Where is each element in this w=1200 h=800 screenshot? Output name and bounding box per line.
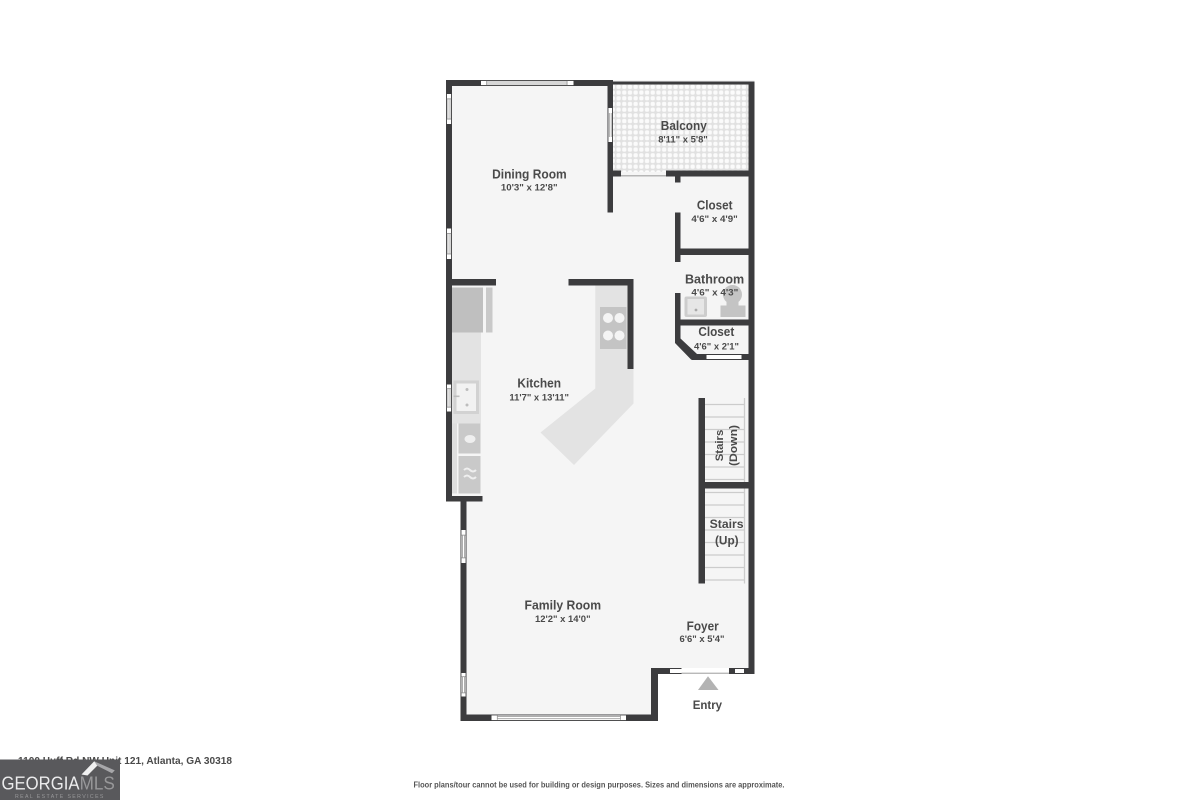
svg-text:4'6" x 4'3": 4'6" x 4'3" <box>691 288 738 299</box>
svg-text:10'3" x 12'8": 10'3" x 12'8" <box>501 183 558 194</box>
svg-text:Closet: Closet <box>697 197 733 212</box>
svg-text:Family Room: Family Room <box>525 598 602 613</box>
svg-text:Entry: Entry <box>693 698 723 712</box>
svg-text:Closet: Closet <box>698 324 735 339</box>
svg-text:11'7" x 13'11": 11'7" x 13'11" <box>509 392 569 403</box>
svg-text:12'2" x 14'0": 12'2" x 14'0" <box>535 614 591 625</box>
svg-text:Floor plans/tour cannot be use: Floor plans/tour cannot be used for buil… <box>414 781 785 790</box>
svg-text:8'11" x 5'8": 8'11" x 5'8" <box>658 134 708 145</box>
svg-text:REAL ESTATE SERVICES: REAL ESTATE SERVICES <box>15 794 105 800</box>
svg-text:6'6" x 5'4": 6'6" x 5'4" <box>680 634 725 645</box>
svg-text:Kitchen: Kitchen <box>517 376 561 391</box>
svg-text:Foyer: Foyer <box>687 618 719 633</box>
svg-text:GEORGIA: GEORGIA <box>2 773 81 794</box>
svg-text:Stairs: Stairs <box>710 517 744 531</box>
svg-text:(Down): (Down) <box>728 425 740 466</box>
svg-text:4'6" x 2'1": 4'6" x 2'1" <box>694 342 739 353</box>
svg-text:Balcony: Balcony <box>661 118 708 133</box>
svg-text:Dining Room: Dining Room <box>492 166 567 181</box>
svg-text:Stairs: Stairs <box>714 430 726 462</box>
svg-text:MLS: MLS <box>80 773 115 794</box>
svg-text:Bathroom: Bathroom <box>685 272 744 287</box>
svg-text:(Up): (Up) <box>715 534 739 548</box>
svg-text:4'6" x 4'9": 4'6" x 4'9" <box>691 214 737 225</box>
